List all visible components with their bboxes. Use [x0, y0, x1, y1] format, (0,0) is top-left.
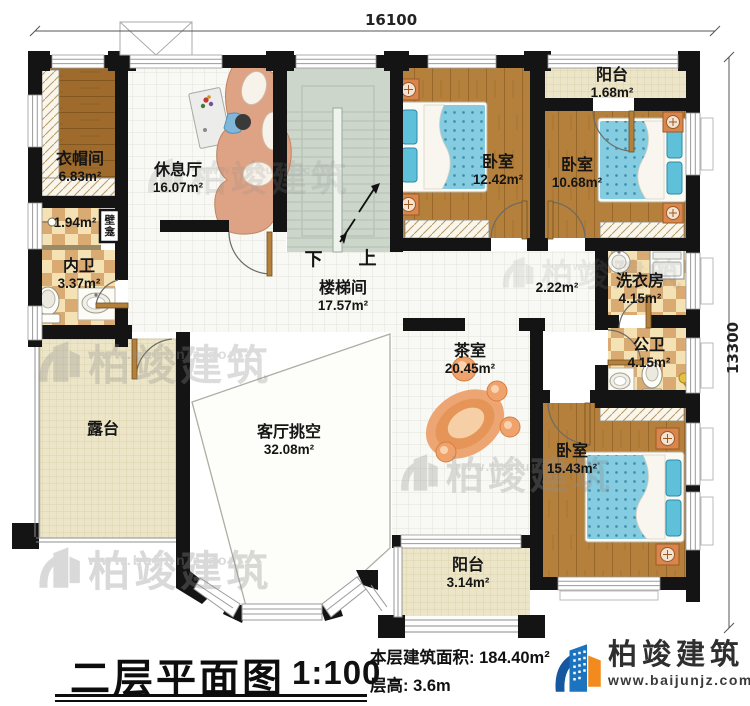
- living-void-outline: [192, 334, 390, 610]
- room-label-niche: 壁龛: [104, 215, 115, 238]
- stairs-up-label: 上: [359, 249, 378, 270]
- floor-height-line: 层高: 3.6m: [370, 672, 451, 696]
- brand-name: 柏竣建筑: [608, 640, 750, 672]
- skylight-box: [120, 22, 192, 55]
- room-label-bedroom3: 卧室15.43m²: [547, 443, 597, 477]
- floorplan-page: 柏竣建筑 www.baijunjz.com 柏竣建筑 www.baijunjz.…: [0, 0, 750, 706]
- room-label-cloakroom: 衣帽间6.83m²: [56, 151, 104, 185]
- room-label-balcony-bottom: 阳台3.14m²: [447, 557, 490, 591]
- brand-block: 柏竣建筑 www.baijunjz.com: [552, 640, 750, 696]
- room-label-balcony-top: 阳台1.68m²: [591, 67, 634, 101]
- room-label-lounge: 休息厅16.07m²: [153, 162, 203, 196]
- dimension-width: 16100: [365, 11, 417, 29]
- title-underline: [55, 700, 367, 702]
- room-label-bedroom1: 卧室12.42m²: [473, 154, 523, 188]
- room-label-living-void: 客厅挑空32.08m²: [257, 424, 321, 458]
- stairs-down-label: 下: [305, 250, 324, 271]
- floor-area-line: 本层建筑面积: 184.40m²: [370, 644, 550, 668]
- brand-logo-icon: [552, 640, 602, 696]
- room-label-shower: 1.94m²: [54, 215, 97, 231]
- room-label-bath-private: 内卫3.37m²: [58, 258, 101, 292]
- staircase: [287, 86, 390, 252]
- title-underline: [55, 694, 367, 697]
- room-label-stairwell: 楼梯间17.57m²: [318, 280, 368, 314]
- room-label-terrace: 露台: [87, 421, 119, 439]
- room-label-bath-public: 公卫4.15m²: [628, 337, 671, 371]
- room-label-bedroom2: 卧室10.68m²: [552, 157, 602, 191]
- title-bar: 二层平面图 1:100 本层建筑面积: 184.40m² 层高: 3.6m: [0, 638, 750, 706]
- room-label-tea-room: 茶室20.45m²: [445, 343, 495, 377]
- plan-scale: 1:100: [292, 654, 381, 692]
- dimension-height: 13300: [724, 322, 742, 374]
- room-label-laundry: 洗衣房4.15m²: [616, 273, 664, 307]
- room-label-hallway: 2.22m²: [536, 280, 579, 296]
- brand-website: www.baijunjz.com: [608, 672, 750, 688]
